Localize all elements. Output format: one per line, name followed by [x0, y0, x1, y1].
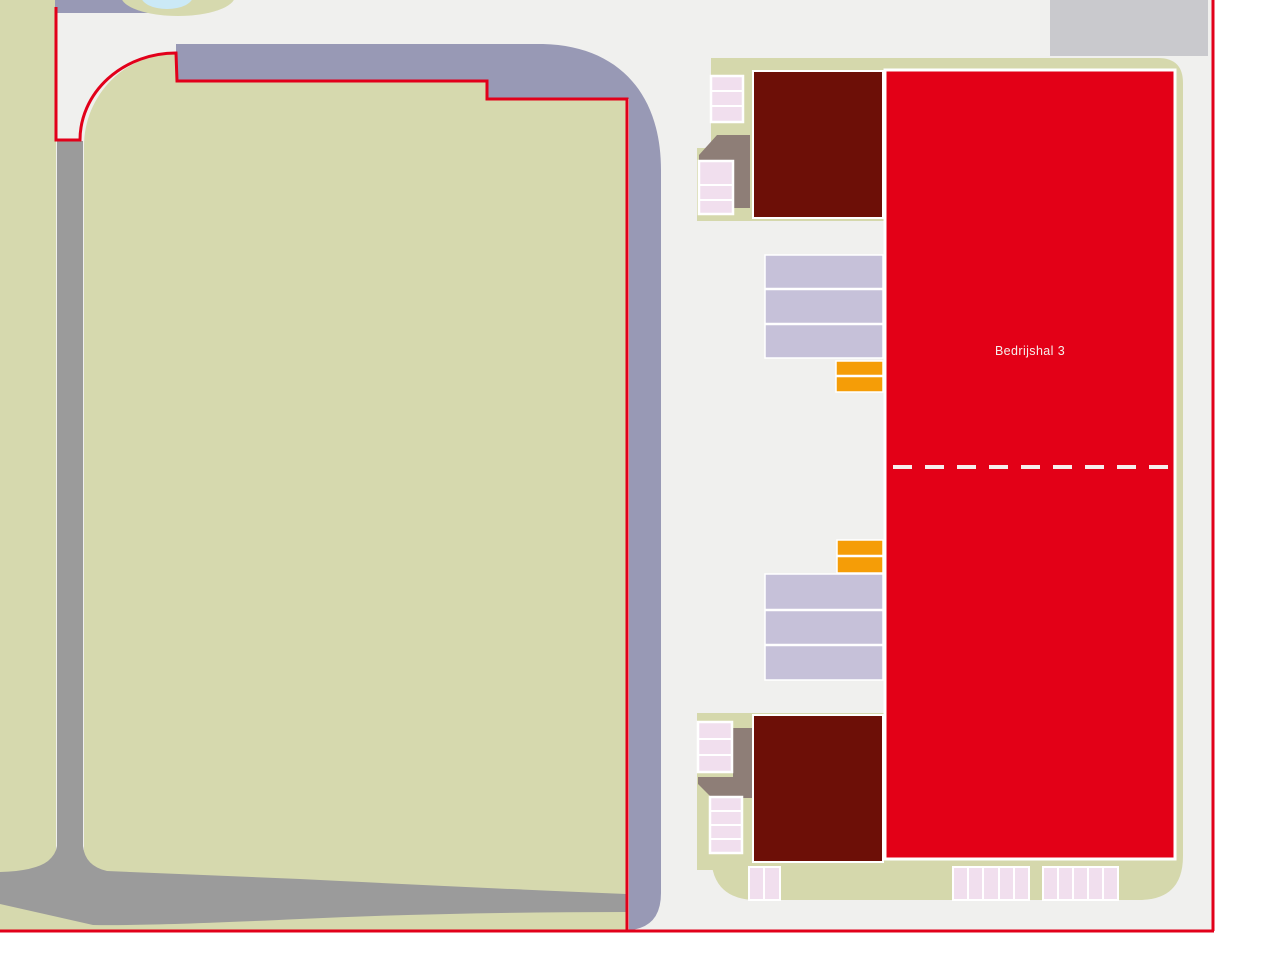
parking-strip-right-bg: [1043, 867, 1118, 900]
bedrijshal-3-rect[interactable]: [885, 70, 1175, 859]
parking-strip-middle-bg: [953, 867, 1029, 900]
parking-block-c: [698, 722, 732, 772]
topright-gray-block: [1050, 0, 1208, 56]
parking-block-d: [710, 797, 742, 853]
upper-orange-block: [836, 361, 883, 392]
parking-strip-small: [749, 867, 780, 900]
upper-lavender-block: [765, 255, 883, 358]
upper-maroon-building[interactable]: [753, 71, 883, 218]
bedrijshal-3-label: Bedrijshal 3: [995, 344, 1065, 358]
parking-block-a-bg: [711, 76, 743, 122]
parking-block-c-bg: [698, 722, 732, 772]
lower-maroon-building[interactable]: [753, 715, 883, 862]
bedrijshal-3-building[interactable]: Bedrijshal 3: [885, 70, 1175, 859]
left-green-strip: [0, 0, 56, 932]
parking-block-a: [711, 76, 743, 122]
site-plan-canvas: Bedrijshal 3: [0, 0, 1280, 957]
upper-lavender-bg: [765, 255, 883, 358]
parking-block-b: [699, 161, 733, 214]
lower-lavender-bg: [765, 574, 883, 680]
parking-strip-middle: [953, 867, 1029, 900]
site-plan-svg: Bedrijshal 3: [0, 0, 1280, 957]
lower-lavender-block: [765, 574, 883, 680]
parking-strip-right: [1043, 867, 1118, 900]
parking-block-b-bg: [699, 161, 733, 214]
main-green-field: [84, 53, 626, 932]
lower-orange-block: [837, 540, 883, 573]
